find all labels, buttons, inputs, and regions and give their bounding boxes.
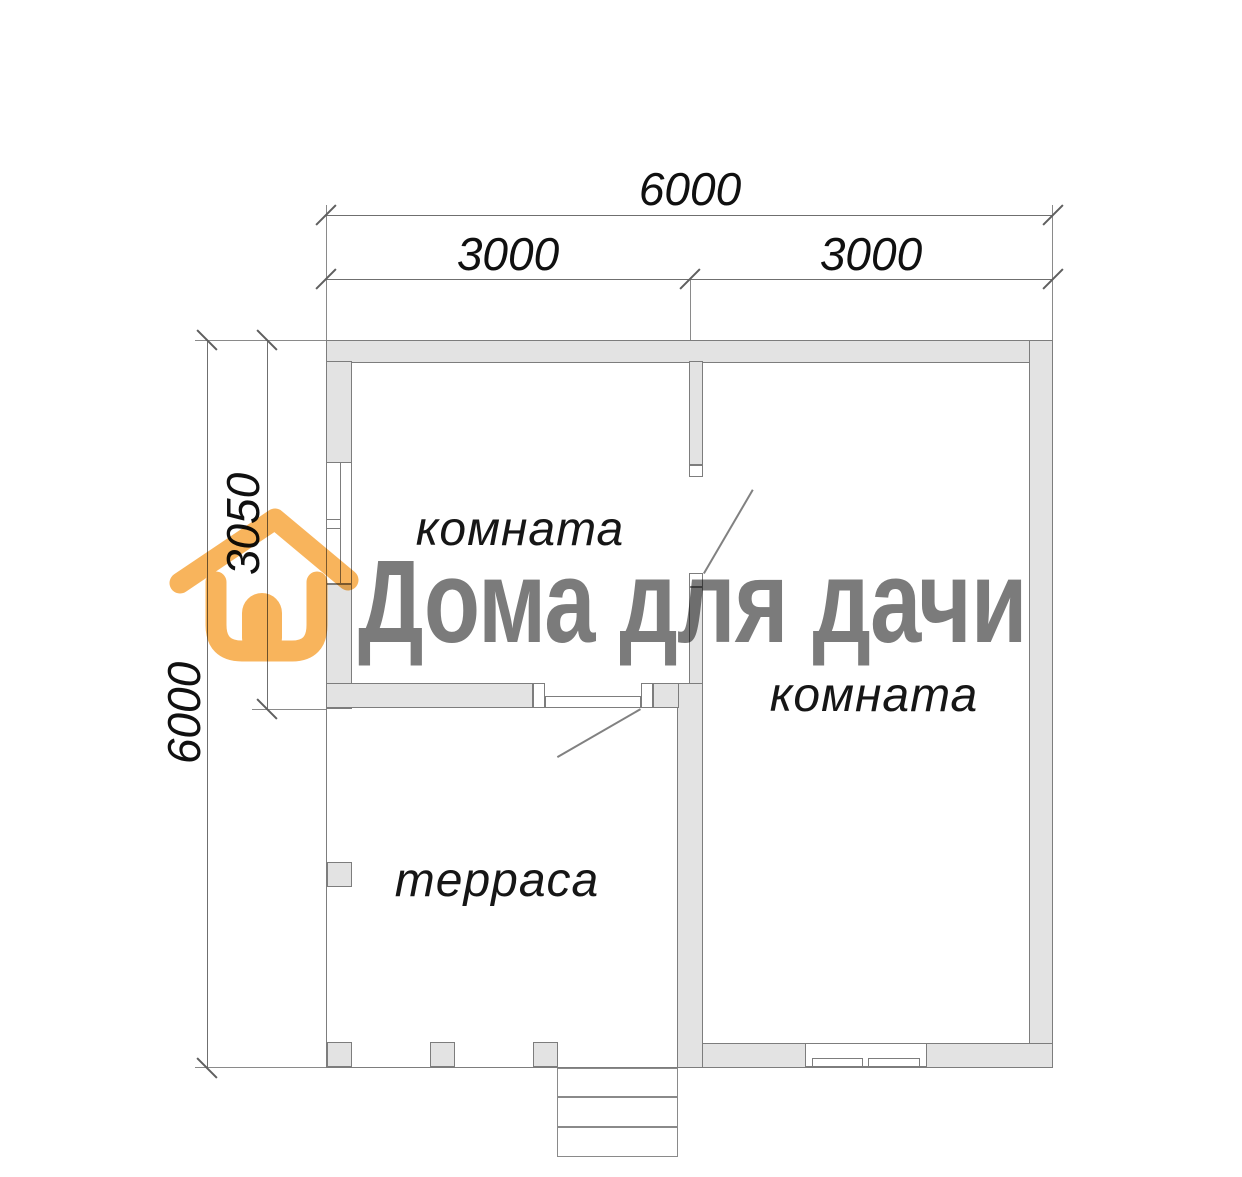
wall-left-upper: [326, 361, 352, 463]
extension-line: [690, 279, 691, 343]
wall-top: [326, 340, 1053, 363]
wall-room1-bottom-right-piece: [653, 683, 679, 708]
extension-line: [252, 709, 326, 710]
dim-label-total-width: 6000: [610, 166, 770, 212]
dim-label-right-span: 3000: [791, 231, 951, 277]
stairs-step: [557, 1127, 678, 1157]
window-left: [326, 462, 352, 584]
terrace-post: [430, 1042, 455, 1067]
wall-terrace-right: [677, 683, 703, 1068]
door-threshold: [545, 696, 641, 708]
door-leaf-room1-terrace: [557, 709, 641, 758]
window-bottom: [805, 1043, 927, 1067]
stairs-step: [557, 1097, 678, 1127]
dimension-line-total-width: [326, 215, 1053, 216]
wall-interior-vertical-mid: [689, 587, 703, 684]
stairs-step: [557, 1068, 678, 1097]
window-mullion: [326, 519, 341, 529]
extension-line: [195, 1067, 326, 1068]
door-jamb: [689, 465, 703, 477]
dim-label-room-height: 3050: [220, 444, 266, 604]
terrace-edge-left: [326, 708, 327, 1068]
extension-line: [195, 340, 326, 341]
door-jamb: [641, 683, 653, 708]
room-label-terrace: терраса: [377, 857, 617, 905]
room-label-right: комната: [754, 672, 994, 720]
window-pane: [868, 1058, 920, 1067]
dim-label-left-span: 3000: [428, 231, 588, 277]
terrace-post: [327, 862, 352, 887]
door-leaf-room1-room2: [703, 489, 753, 574]
door-jamb: [689, 573, 703, 587]
wall-interior-vertical-upper: [689, 361, 703, 465]
dim-label-total-height: 6000: [161, 633, 207, 793]
extension-line: [326, 205, 327, 341]
window-pane: [812, 1058, 863, 1067]
terrace-post: [533, 1042, 558, 1067]
terrace-post: [327, 1042, 352, 1067]
wall-room1-bottom: [326, 683, 533, 708]
floor-plan-canvas: 6000 3000 3000 6000 3050 комната комната…: [0, 0, 1242, 1177]
door-jamb: [533, 683, 545, 708]
room-label-top-left: комната: [400, 506, 640, 554]
wall-right: [1029, 340, 1053, 1068]
extension-line: [1052, 205, 1053, 341]
